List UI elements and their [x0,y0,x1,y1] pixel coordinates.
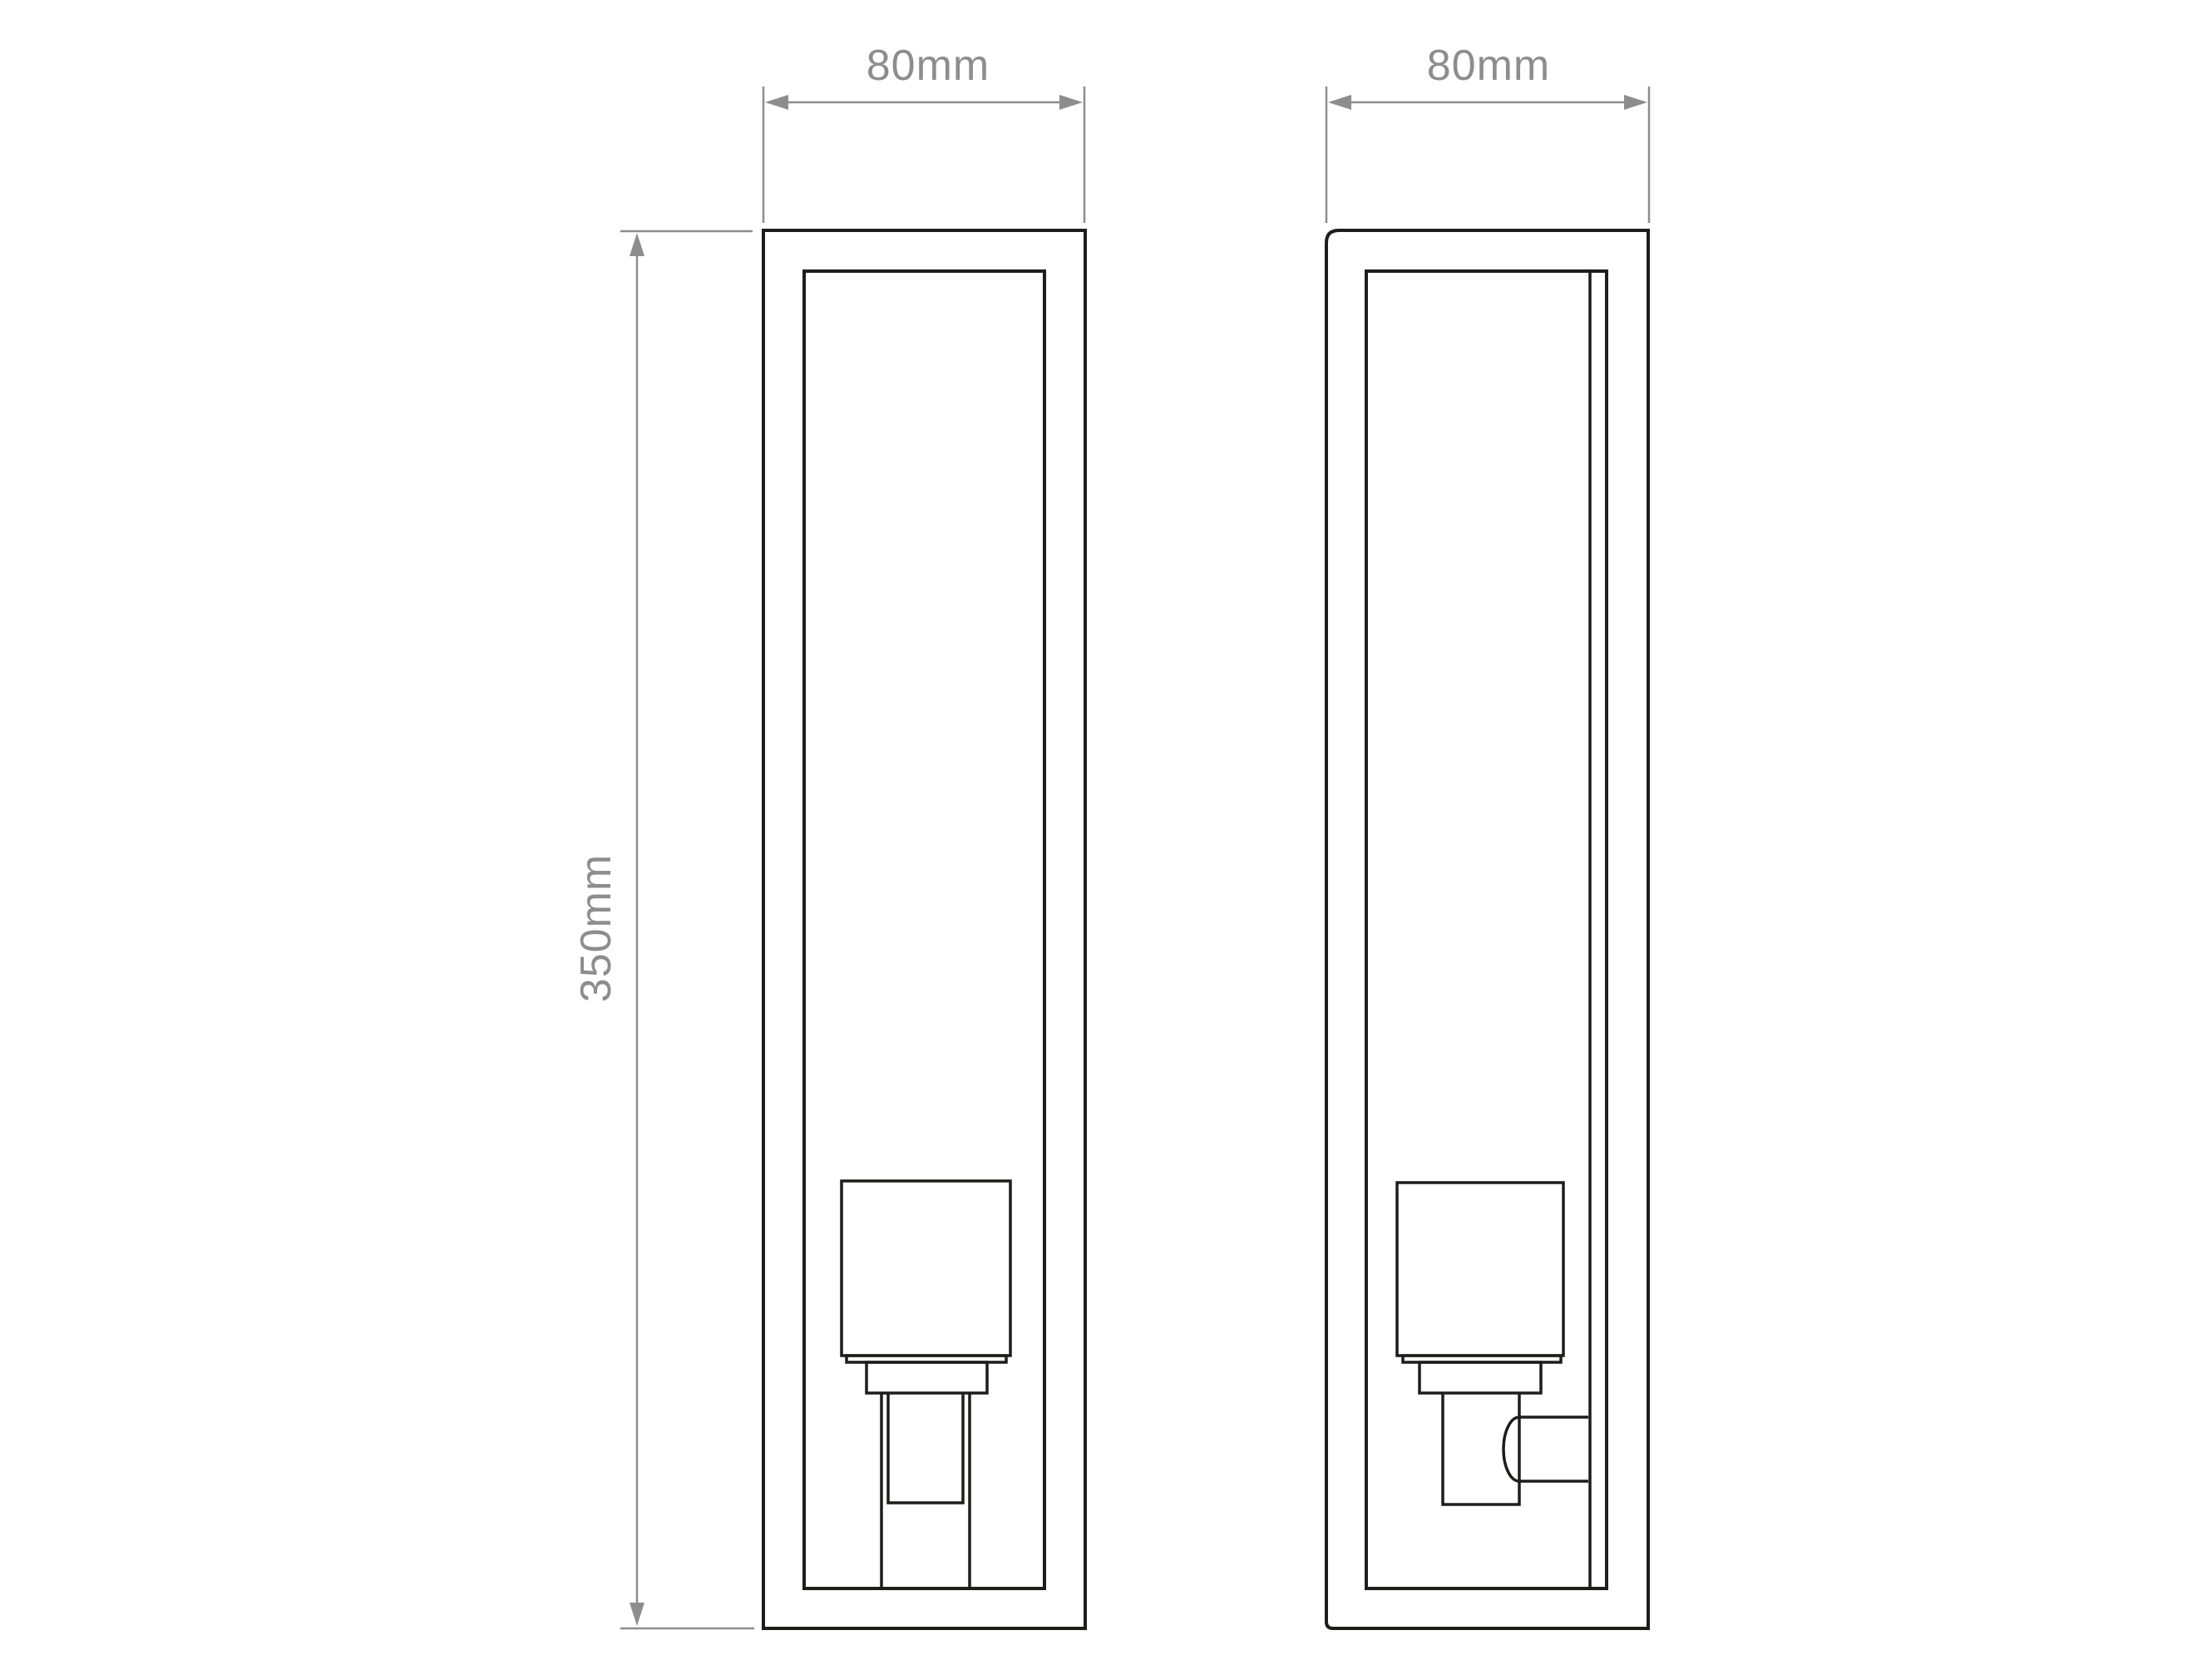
side-candle-tube [1443,1393,1519,1504]
height-label: 350mm [572,854,620,1002]
side-width-label: 80mm [1427,42,1550,90]
drawing-page: 80mm 80mm 350mm [0,0,2212,1660]
side-lampholder-body [1420,1362,1541,1393]
front-inner-frame [804,271,1044,1588]
front-width-arrow-right [1059,95,1083,110]
dimension-drawing-canvas: 80mm 80mm 350mm [0,0,2212,1660]
front-candle-sleeve [888,1393,963,1503]
front-width-dimension: 80mm [763,42,1084,223]
front-width-arrow-left [765,95,788,110]
dimension-annotations: 80mm 80mm 350mm [572,42,1649,1628]
side-view-drawing [1326,230,1648,1628]
front-width-label: 80mm [867,42,990,90]
height-arrow-bottom [630,1603,644,1626]
side-glass-shade [1397,1183,1563,1356]
side-mounting-arm [1503,1417,1588,1481]
side-outer-frame [1326,230,1648,1628]
height-dimension: 350mm [572,231,754,1628]
front-view-drawing [763,230,1085,1628]
side-width-dimension: 80mm [1326,42,1649,223]
front-lampholder-body [867,1362,987,1393]
side-width-arrow-left [1328,95,1351,110]
height-arrow-top [630,233,644,256]
side-width-arrow-right [1624,95,1647,110]
front-outer-frame [763,230,1085,1628]
front-glass-shade [842,1181,1010,1356]
side-inner-frame [1366,271,1607,1588]
